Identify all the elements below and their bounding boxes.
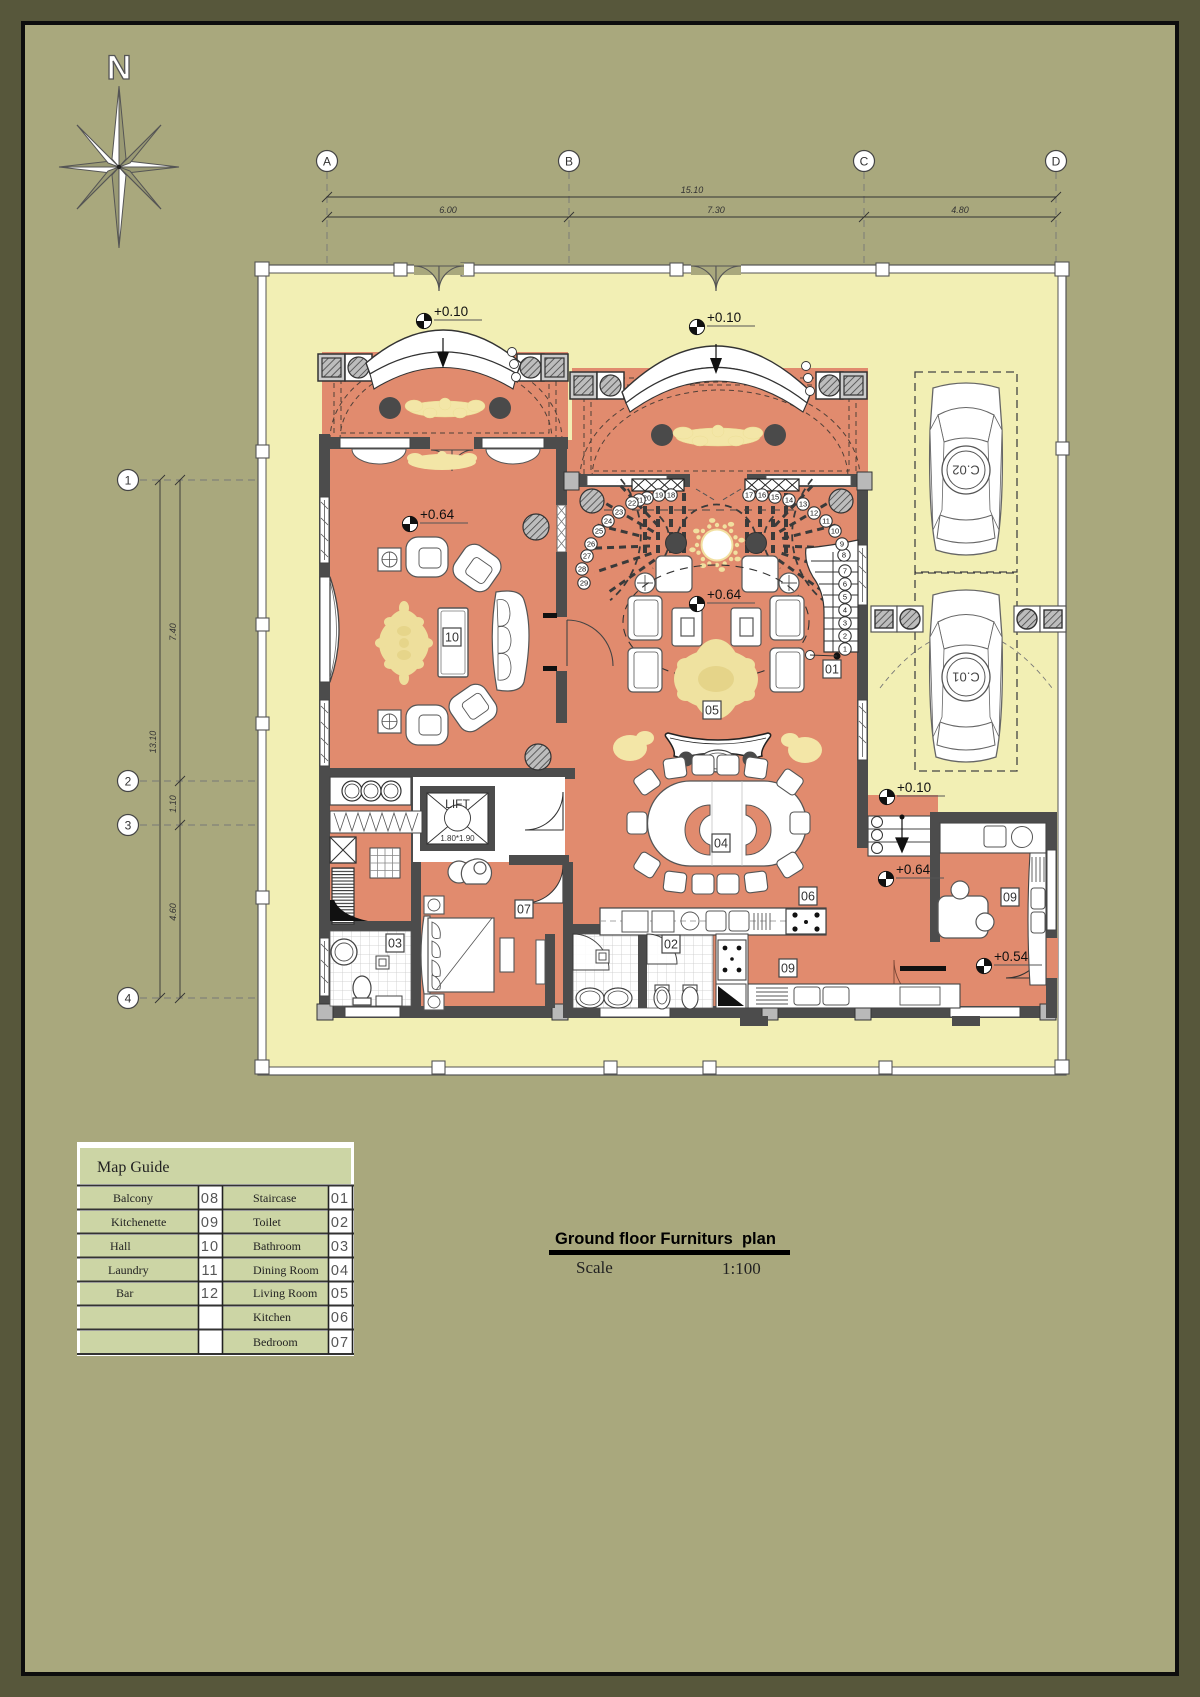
- svg-text:14: 14: [785, 495, 793, 504]
- svg-text:09: 09: [781, 962, 795, 976]
- svg-text:6.00: 6.00: [439, 205, 457, 215]
- svg-text:Bedroom: Bedroom: [253, 1335, 298, 1349]
- svg-text:Hall: Hall: [110, 1239, 131, 1253]
- svg-text:22: 22: [628, 498, 636, 507]
- svg-text:8: 8: [842, 550, 846, 559]
- svg-text:15: 15: [771, 492, 779, 501]
- svg-text:26: 26: [587, 539, 595, 548]
- svg-text:C: C: [860, 155, 869, 169]
- svg-text:C.02: C.02: [952, 463, 979, 478]
- svg-text:10: 10: [831, 526, 839, 535]
- svg-text:29: 29: [580, 578, 588, 587]
- svg-text:07: 07: [517, 903, 531, 917]
- svg-text:12: 12: [201, 1286, 219, 1302]
- svg-text:1:100: 1:100: [722, 1259, 761, 1278]
- svg-text:24: 24: [604, 516, 612, 525]
- svg-text:13: 13: [799, 499, 807, 508]
- svg-text:1.80*1.90: 1.80*1.90: [440, 834, 475, 843]
- svg-text:Scale: Scale: [576, 1258, 613, 1277]
- svg-text:05: 05: [705, 704, 719, 718]
- svg-text:19: 19: [655, 490, 663, 499]
- svg-text:05: 05: [331, 1286, 349, 1302]
- svg-text:16: 16: [758, 490, 766, 499]
- svg-text:+0.64: +0.64: [896, 862, 931, 877]
- svg-text:7.30: 7.30: [707, 205, 725, 215]
- svg-text:02: 02: [664, 938, 678, 952]
- svg-text:Bar: Bar: [116, 1286, 133, 1300]
- svg-text:Kitchen: Kitchen: [253, 1310, 291, 1324]
- svg-text:Dining Room: Dining Room: [253, 1263, 319, 1277]
- svg-text:06: 06: [801, 890, 815, 904]
- svg-text:13.10: 13.10: [148, 731, 158, 754]
- svg-text:1.10: 1.10: [168, 795, 178, 813]
- svg-text:27: 27: [583, 551, 591, 560]
- svg-text:+0.64: +0.64: [707, 587, 742, 602]
- svg-text:07: 07: [331, 1335, 349, 1351]
- svg-text:2: 2: [125, 775, 132, 789]
- svg-text:03: 03: [388, 937, 402, 951]
- svg-text:11: 11: [822, 516, 830, 525]
- svg-text:04: 04: [714, 837, 728, 851]
- svg-text:5: 5: [843, 592, 847, 601]
- svg-text:28: 28: [578, 564, 586, 573]
- svg-text:4: 4: [125, 992, 132, 1006]
- svg-text:Map Guide: Map Guide: [97, 1159, 169, 1176]
- svg-text:N: N: [107, 49, 132, 87]
- svg-text:09: 09: [1003, 891, 1017, 905]
- svg-text:09: 09: [201, 1215, 219, 1231]
- svg-text:+0.10: +0.10: [897, 780, 931, 795]
- svg-text:17: 17: [745, 490, 753, 499]
- svg-text:4: 4: [843, 605, 847, 614]
- svg-text:03: 03: [331, 1239, 349, 1255]
- svg-text:3: 3: [125, 819, 132, 833]
- svg-text:4.80: 4.80: [951, 205, 969, 215]
- svg-text:Bathroom: Bathroom: [253, 1239, 302, 1253]
- svg-text:Balcony: Balcony: [113, 1191, 153, 1205]
- svg-text:C.01: C.01: [952, 670, 979, 685]
- svg-text:18: 18: [667, 490, 675, 499]
- svg-text:+0.10: +0.10: [434, 304, 468, 319]
- svg-text:B: B: [565, 155, 573, 169]
- svg-text:06: 06: [331, 1310, 349, 1326]
- svg-text:Staircase: Staircase: [253, 1191, 296, 1205]
- svg-text:23: 23: [615, 507, 623, 516]
- svg-text:15.10: 15.10: [681, 185, 704, 195]
- svg-text:+0.10: +0.10: [707, 310, 741, 325]
- svg-text:Laundry: Laundry: [108, 1263, 149, 1277]
- svg-text:25: 25: [595, 526, 603, 535]
- svg-text:1: 1: [843, 644, 847, 653]
- svg-text:D: D: [1052, 155, 1061, 169]
- svg-text:04: 04: [331, 1263, 349, 1279]
- svg-text:+0.64: +0.64: [420, 507, 455, 522]
- svg-text:02: 02: [331, 1215, 349, 1231]
- svg-text:+0.54: +0.54: [994, 949, 1029, 964]
- svg-text:Living Room: Living Room: [253, 1286, 318, 1300]
- svg-text:Toilet: Toilet: [253, 1215, 281, 1229]
- svg-text:7: 7: [843, 566, 847, 575]
- svg-text:01: 01: [331, 1191, 349, 1207]
- svg-text:12: 12: [810, 508, 818, 517]
- svg-text:11: 11: [201, 1263, 218, 1279]
- svg-text:1: 1: [125, 474, 132, 488]
- svg-text:7.40: 7.40: [168, 623, 178, 641]
- svg-text:Ground floor Furniturs plan: Ground floor Furniturs plan: [555, 1230, 776, 1248]
- svg-text:01: 01: [825, 663, 839, 677]
- svg-text:4.60: 4.60: [168, 903, 178, 921]
- svg-text:9: 9: [840, 539, 844, 548]
- svg-text:3: 3: [843, 618, 847, 627]
- svg-text:LIFT: LIFT: [445, 797, 470, 811]
- svg-text:10: 10: [445, 631, 459, 645]
- svg-text:10: 10: [201, 1239, 219, 1255]
- svg-text:6: 6: [843, 579, 847, 588]
- svg-text:2: 2: [843, 631, 847, 640]
- svg-text:Kitchenette: Kitchenette: [111, 1215, 166, 1229]
- svg-text:08: 08: [201, 1191, 219, 1207]
- svg-text:A: A: [323, 155, 331, 169]
